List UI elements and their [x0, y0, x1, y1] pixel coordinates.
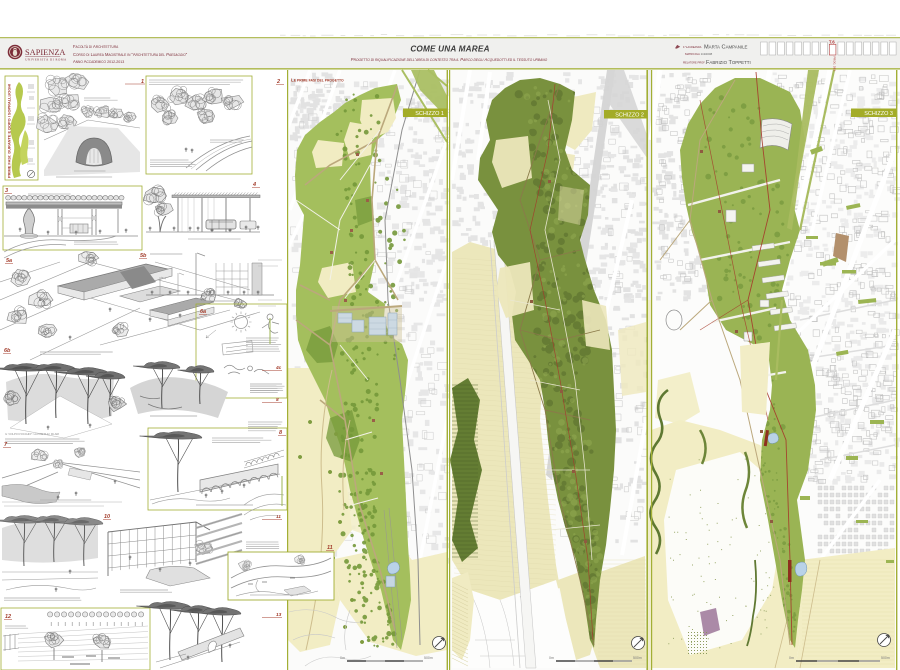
svg-text:1°LAUREANDA: 1°LAUREANDA: [683, 45, 702, 49]
svg-text:PROG. DEF.: PROG. DEF.: [832, 57, 836, 72]
svg-text:CORSO DI LAUREA MAGISTRALE IN: CORSO DI LAUREA MAGISTRALE IN “ARCHITETT…: [73, 52, 188, 57]
svg-text:MATRICOLA 1192008: MATRICOLA 1192008: [685, 52, 712, 56]
svg-text:11: 11: [276, 514, 281, 520]
svg-text:0m: 0m: [789, 656, 794, 660]
svg-text:LE PRIME FASI DEL PROGETTO: LE PRIME FASI DEL PROGETTO: [291, 78, 344, 83]
svg-text:SCHIZZO 1: SCHIZZO 1: [415, 111, 444, 117]
svg-text:13: 13: [276, 612, 282, 618]
svg-text:500m: 500m: [633, 656, 642, 660]
svg-text:PRIME FASI: DURANTE E DOPO I S: PRIME FASI: DURANTE E DOPO I SOPRALLUOGH…: [7, 84, 12, 178]
svg-text:0m: 0m: [340, 656, 345, 660]
svg-text:RELATORE PROF.: RELATORE PROF.: [683, 60, 706, 64]
svg-text:UNIVERSITÀ DI ROMA: UNIVERSITÀ DI ROMA: [25, 57, 67, 62]
svg-text:500m: 500m: [881, 656, 890, 660]
svg-text:PROGETTO DI RIQUALIFICAZIONE D: PROGETTO DI RIQUALIFICAZIONE DELL’AREA D…: [351, 57, 548, 62]
svg-text:1: 1: [141, 79, 144, 85]
svg-text:IL “COLPO D’OCCHIO”: LA PINETA: IL “COLPO D’OCCHIO”: LA PINETA E I FILAR…: [5, 432, 59, 436]
svg-text:6b: 6b: [4, 348, 11, 354]
svg-text:4: 4: [252, 182, 256, 188]
svg-text:6a: 6a: [200, 309, 206, 315]
svg-text:FACOLTÀ DI ARCHITETTURA: FACOLTÀ DI ARCHITETTURA: [73, 44, 119, 49]
svg-text:0m: 0m: [549, 656, 554, 660]
svg-text:5a: 5a: [6, 258, 12, 264]
svg-text:5b: 5b: [140, 253, 147, 259]
svg-text:T.6: T.6: [829, 40, 835, 45]
svg-text:10: 10: [104, 514, 110, 520]
svg-text:SAPIENZA: SAPIENZA: [25, 48, 65, 57]
svg-text:500m: 500m: [424, 656, 433, 660]
svg-text:COME UNA MAREA: COME UNA MAREA: [410, 45, 489, 54]
svg-text:8: 8: [276, 397, 279, 403]
svg-text:4c: 4c: [275, 365, 282, 371]
svg-text:2: 2: [276, 79, 280, 85]
svg-text:SCHIZZO 2: SCHIZZO 2: [615, 113, 644, 119]
svg-text:ANNO ACCADEMICO 2012-2013: ANNO ACCADEMICO 2012-2013: [73, 59, 124, 64]
svg-text:11: 11: [327, 545, 333, 551]
svg-text:12: 12: [5, 614, 11, 620]
svg-text:3: 3: [5, 188, 8, 194]
svg-text:SCHIZZO 3: SCHIZZO 3: [864, 111, 893, 117]
